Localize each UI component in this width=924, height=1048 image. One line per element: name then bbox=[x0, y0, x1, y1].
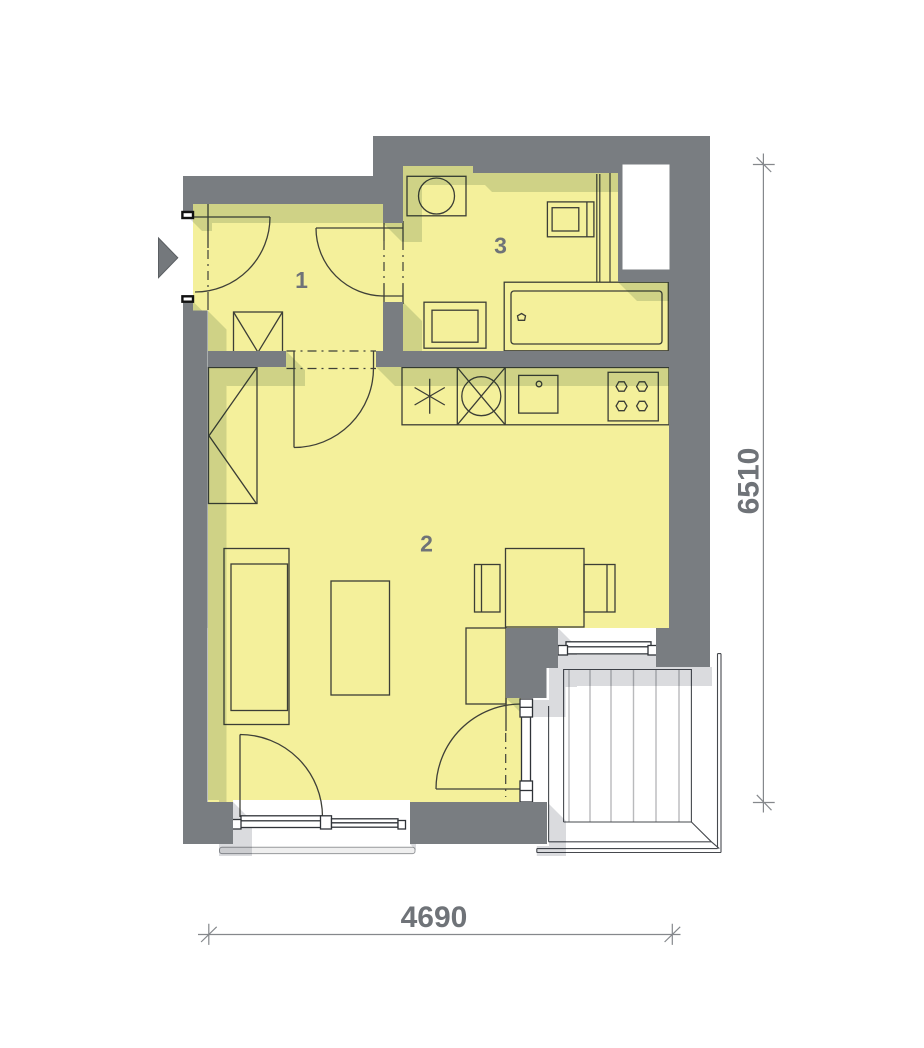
svg-text:3: 3 bbox=[494, 233, 507, 259]
svg-text:4690: 4690 bbox=[401, 901, 468, 934]
svg-text:2: 2 bbox=[420, 531, 433, 557]
svg-text:1: 1 bbox=[295, 267, 308, 293]
svg-text:6510: 6510 bbox=[733, 448, 766, 515]
